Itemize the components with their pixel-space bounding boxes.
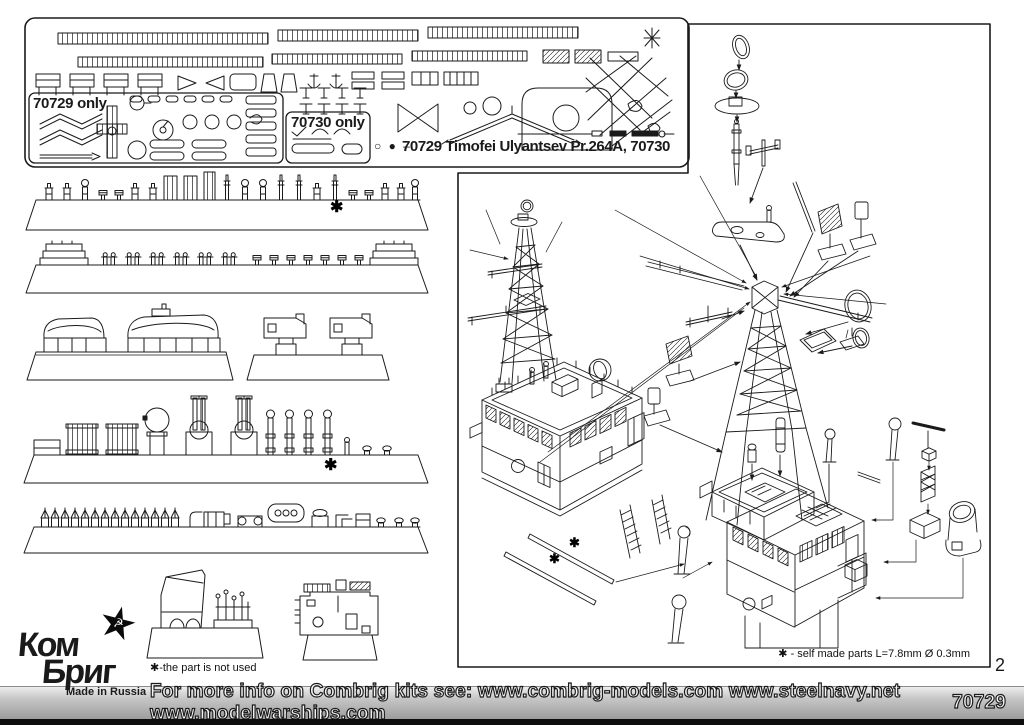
assembly-diagram-box [458,24,990,667]
sprue-boats [27,304,389,380]
aft-deckhouse [727,489,867,648]
page-number: 2 [995,656,1005,674]
kit-title: 70729 Timofei Ulyantsev Pr.264A, 70730 [398,139,670,154]
bridge-superstructure [468,200,644,516]
fret-label-70729-only: 70729 only [33,96,107,111]
not-used-star-sprue4: ✱ [324,458,337,474]
fret-label-70730-only: 70730 only [291,115,365,130]
sprue-guns-davits [24,396,428,483]
hammer-sickle-icon: ☭ [113,616,124,630]
sprue-small-deck-fittings [24,504,428,553]
self-made-star-spar2: ✱ [549,552,560,565]
yard-and-antenna-parts [644,306,744,452]
mast-platform [700,418,836,540]
logo-tagline: Made in Russia [66,686,146,698]
sprue-bollards-vents [26,241,428,293]
combrig-logo: ★ ☭ Ком Бриг Made in Russia [14,612,174,704]
assembly-exploded-view [468,33,981,648]
self-made-star-spar1: ✱ [569,536,580,549]
ladders-and-vents [504,495,712,643]
mast-top-parts [712,33,876,297]
footer-black-strip [0,719,1024,725]
deckhouse-side-assembly [295,580,378,660]
note-self-made-parts: ✱ - self made parts L=7.8mm Ø 0.3mm [758,649,970,660]
sprue-masts-small-fittings [26,172,428,230]
not-used-star-sprue1: ✱ [330,200,343,216]
footer-kit-number: 70729 [952,692,1006,714]
instruction-sheet-page: 70729 only 70730 only ○ ● – 70729 Timofe… [0,0,1024,725]
